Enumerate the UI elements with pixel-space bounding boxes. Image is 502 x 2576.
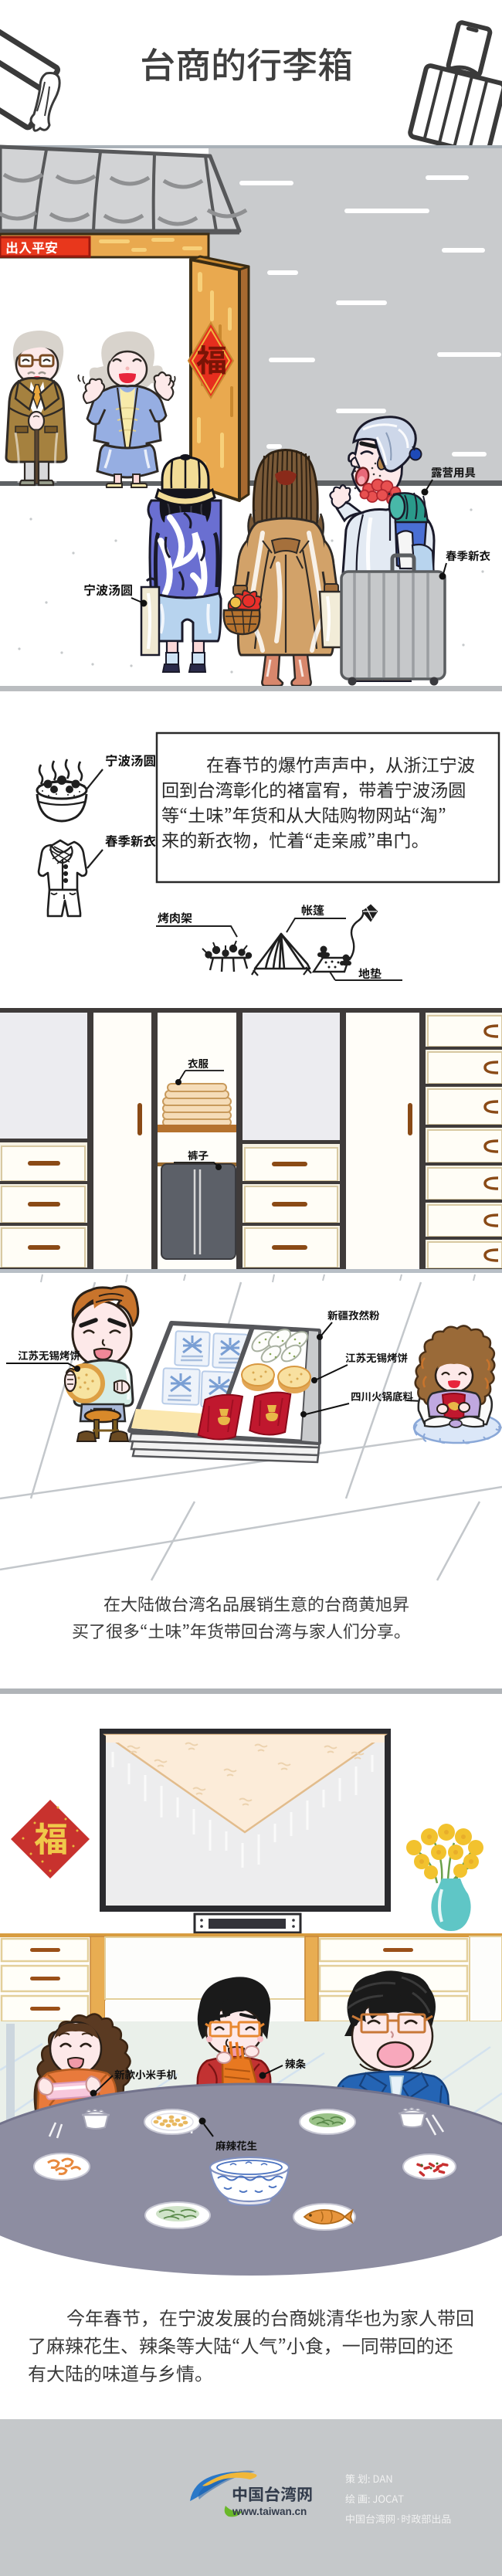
- svg-text:www.taiwan.cn: www.taiwan.cn: [232, 2506, 307, 2517]
